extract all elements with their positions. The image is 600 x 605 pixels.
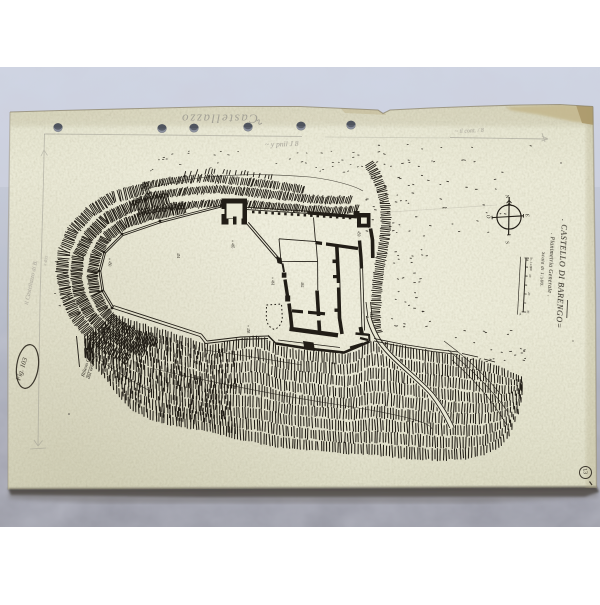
- svg-text:Castellazzo: Castellazzo: [180, 112, 258, 127]
- svg-text:462: 462: [300, 282, 304, 288]
- svg-text:451: 451: [176, 253, 180, 259]
- svg-text:+ 465: + 465: [231, 240, 235, 249]
- svg-text:+ 450: + 450: [108, 258, 112, 267]
- svg-text:~ y pnil J 8: ~ y pnil J 8: [265, 139, 299, 149]
- svg-text:Sc. 1 a 500: Sc. 1 a 500: [529, 257, 534, 271]
- svg-text:+ 458: + 458: [246, 325, 250, 334]
- svg-text:13: 13: [581, 468, 588, 475]
- svg-text:m.: m.: [518, 313, 522, 316]
- svg-text:+ 461: + 461: [271, 277, 275, 286]
- svg-text:459: 459: [357, 231, 361, 237]
